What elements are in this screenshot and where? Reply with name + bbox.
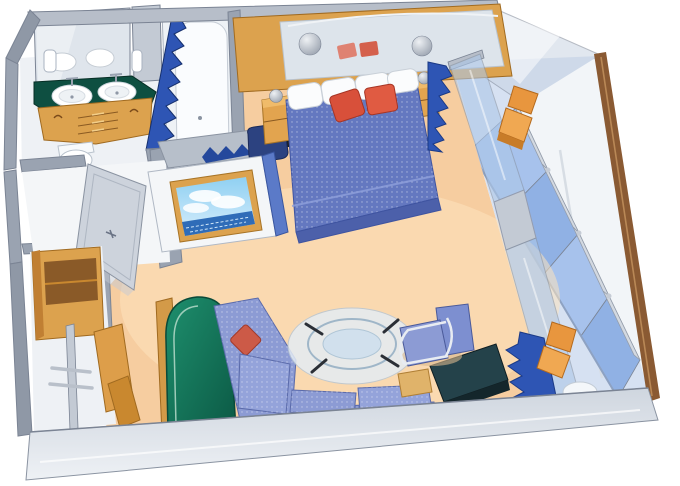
tv-cloud [183, 203, 209, 213]
sofa-pattern [238, 354, 290, 414]
lamp-reflection [299, 33, 321, 55]
red-accent-pillow [364, 84, 398, 116]
sink-drain [115, 91, 118, 94]
rail-post [546, 168, 551, 173]
left-wall [4, 58, 18, 170]
sphere-lamp [270, 90, 283, 103]
side-table [398, 369, 432, 397]
floorplan-stage [0, 0, 680, 486]
bed-pillow [286, 81, 323, 110]
sink-drain [70, 95, 73, 98]
mirror-sink-reflection [86, 49, 114, 67]
rail-post [607, 294, 612, 299]
rail-post [577, 231, 582, 236]
wall-dispenser [44, 50, 56, 72]
floorplan-rendering [0, 0, 680, 486]
pillow-reflection [359, 41, 379, 57]
tv-cloud [211, 196, 245, 209]
tub-drain [198, 116, 202, 120]
lamp-reflection [412, 36, 432, 56]
wall-dispenser [132, 50, 142, 72]
coffee-table-glass [323, 329, 381, 359]
